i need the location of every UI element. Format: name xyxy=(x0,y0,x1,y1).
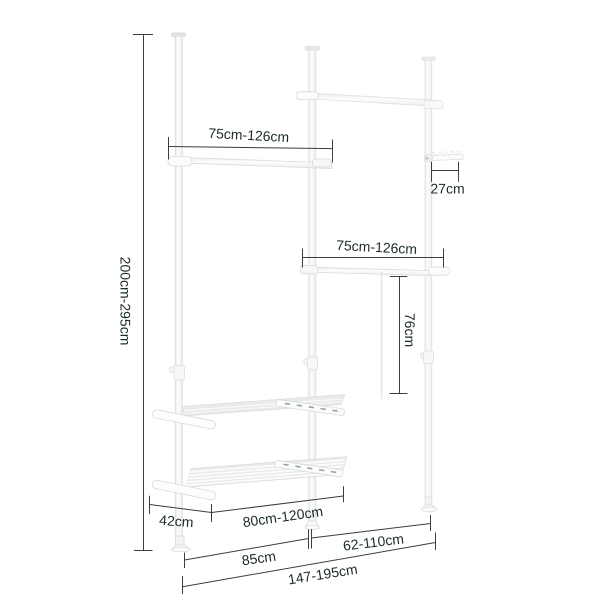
svg-text:200cm-295cm: 200cm-295cm xyxy=(118,257,134,346)
svg-text:27cm: 27cm xyxy=(430,181,464,197)
svg-text:76cm: 76cm xyxy=(402,313,418,347)
svg-text:42cm: 42cm xyxy=(159,512,194,530)
